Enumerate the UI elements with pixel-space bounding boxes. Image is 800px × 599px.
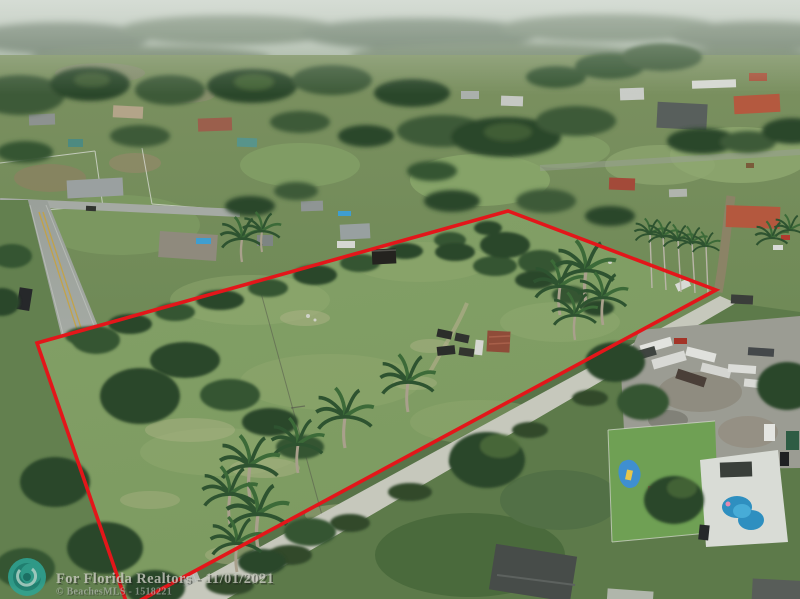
gray-estate-house <box>67 178 124 199</box>
white-van <box>764 424 775 441</box>
aerial-photo: For Florida Realtors - 11/01/2021 For Fl… <box>0 0 800 599</box>
green-container <box>786 431 799 450</box>
horse <box>746 163 754 168</box>
watermark-line2: © BeachesMLS - 1518221 <box>56 587 172 598</box>
aerial-photo-canvas: For Florida Realtors - 11/01/2021 For Fl… <box>0 0 800 599</box>
atmospheric-haze <box>0 0 800 95</box>
suv <box>698 525 710 541</box>
terracotta-ranch <box>726 205 781 229</box>
red-truck <box>674 338 687 344</box>
pool-house <box>158 231 218 261</box>
car-on-street <box>86 206 96 212</box>
watermark-line1: For Florida Realtors - 11/01/2021 <box>56 571 274 587</box>
rust-shed <box>486 330 510 352</box>
mls-logo <box>8 558 46 596</box>
pool-pavilion <box>720 461 753 477</box>
backyard-pool-small <box>196 238 211 244</box>
construction-house <box>656 102 707 131</box>
terracotta-house <box>734 94 781 114</box>
white-truck <box>474 340 484 356</box>
black-car <box>780 452 789 466</box>
